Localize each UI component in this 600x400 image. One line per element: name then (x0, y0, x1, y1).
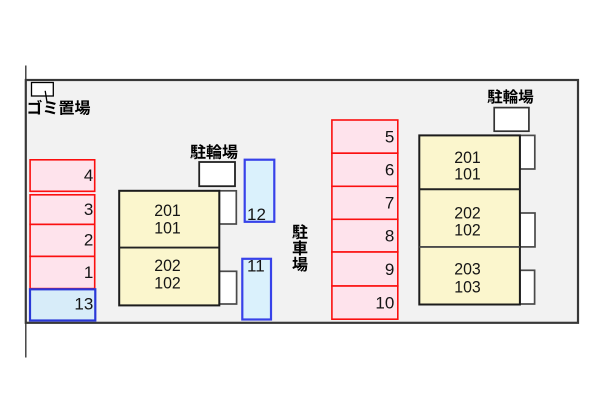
svg-text:9: 9 (385, 260, 394, 279)
svg-text:102: 102 (454, 221, 481, 240)
svg-text:7: 7 (385, 194, 394, 213)
svg-text:8: 8 (385, 226, 394, 245)
svg-text:203: 203 (454, 260, 481, 279)
svg-text:2: 2 (84, 231, 93, 250)
svg-text:6: 6 (385, 161, 394, 180)
svg-text:102: 102 (154, 274, 181, 293)
svg-text:103: 103 (454, 278, 481, 297)
svg-text:4: 4 (84, 166, 93, 185)
svg-text:101: 101 (154, 219, 181, 238)
svg-text:101: 101 (454, 165, 481, 184)
svg-text:10: 10 (375, 293, 394, 312)
svg-text:5: 5 (385, 127, 394, 146)
svg-text:3: 3 (84, 200, 93, 219)
svg-text:1: 1 (84, 263, 93, 282)
svg-text:202: 202 (154, 256, 181, 275)
svg-text:12: 12 (247, 205, 266, 224)
svg-text:11: 11 (247, 257, 265, 276)
svg-text:13: 13 (74, 295, 93, 314)
svg-text:201: 201 (154, 201, 181, 220)
